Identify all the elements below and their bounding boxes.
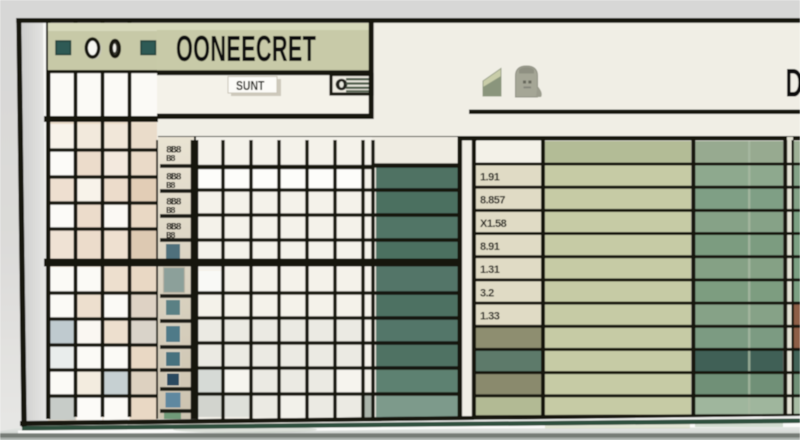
svg-text:8.91: 8.91: [480, 241, 500, 253]
svg-text:1.33: 1.33: [480, 311, 500, 323]
svg-text:3.2: 3.2: [480, 287, 494, 299]
svg-text:OONEECRET: OONEECRET: [176, 29, 316, 69]
svg-text:SUNT: SUNT: [236, 79, 265, 93]
svg-text:8.857: 8.857: [480, 195, 505, 207]
svg-text:X1.58: X1.58: [480, 218, 507, 230]
svg-text:1.31: 1.31: [480, 264, 500, 276]
svg-text:1.91: 1.91: [480, 172, 500, 184]
svg-text:D: D: [786, 60, 800, 105]
svg-text:B8: B8: [166, 154, 175, 164]
